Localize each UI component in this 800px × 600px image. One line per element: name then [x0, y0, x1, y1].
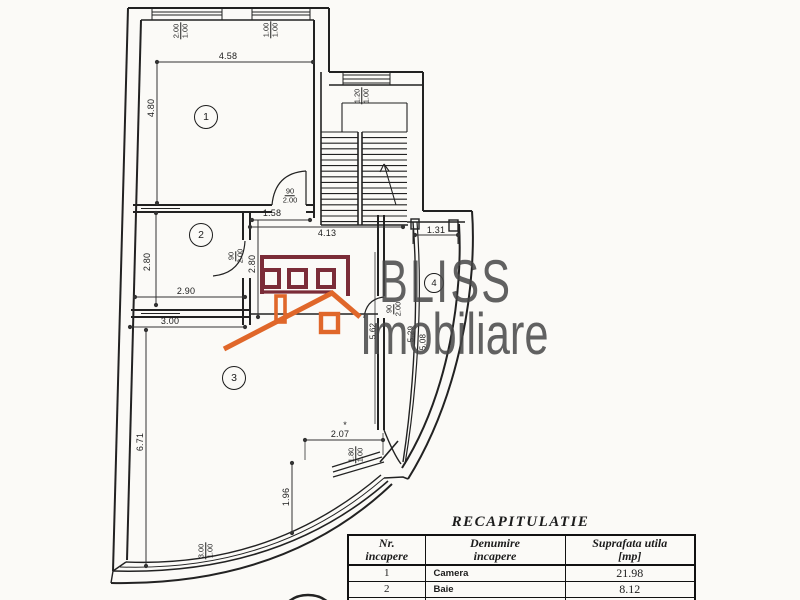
row-area: 8.12: [565, 581, 695, 597]
logo-house: [224, 257, 360, 349]
table-row: 1 Camera 21.98: [348, 565, 695, 582]
window-size-label-notch: 1.801.00: [347, 447, 365, 464]
room-3-badge: 3: [222, 366, 246, 390]
stairs: [321, 103, 408, 225]
row-area: 21.98: [565, 565, 695, 582]
dim-hall-height: 2.80: [247, 255, 257, 273]
dim-star-mark: *: [343, 420, 347, 430]
recap-table: Nr.incapere Denumireincapere Suprafata u…: [347, 534, 696, 600]
logo-window: [321, 314, 338, 332]
row-nr: 1: [348, 565, 425, 582]
col-header-denumire: Denumireincapere: [425, 535, 565, 565]
row-name: Baie: [425, 581, 565, 597]
room-2-badge: 2: [189, 223, 213, 247]
row-name: Camera: [425, 565, 565, 582]
dim-room1-width: 4.58: [219, 51, 237, 61]
window-size-label-stair: 1.201.00: [353, 88, 371, 105]
scanned-floor-plan-page: 1 2 3 4 4.58 4.80 2.80 2.90 3.00 6.71 1.…: [0, 0, 800, 600]
logo-building: [262, 257, 348, 296]
room-1-badge: 1: [194, 105, 218, 129]
dim-notch-width: 2.07: [331, 429, 349, 439]
recap-section: RECAPITULATIE Nr.incapere Denumireincape…: [347, 514, 694, 600]
door-size-label-room2: 902.00: [227, 249, 245, 264]
row-nr: 2: [348, 581, 425, 597]
door-size-label-room1: 902.00: [283, 187, 298, 205]
recap-title: RECAPITULATIE: [347, 514, 694, 531]
dim-notch-height: 1.96: [281, 488, 291, 506]
table-row: 2 Baie 8.12: [348, 581, 695, 597]
dim-room3-height: 6.71: [135, 433, 145, 451]
dim-bay-width: 1.31: [427, 225, 445, 235]
logo-roof: [224, 293, 360, 349]
col-header-suprafata: Suprafata utila[mp]: [565, 535, 695, 565]
window-size-label-top-right: 1.001.00: [262, 22, 280, 39]
dim-hall-width: 1.58: [263, 208, 281, 218]
dim-room2-height: 2.80: [142, 253, 152, 271]
window-size-label-bay: 3.001.00: [197, 543, 215, 560]
watermark-brand-line2: Imobiliare: [360, 301, 549, 368]
dim-room2-width: 2.90: [177, 286, 195, 296]
dim-room1-height: 4.80: [146, 99, 156, 117]
col-header-nr: Nr.incapere: [348, 535, 425, 565]
dim-stair-span: 4.13: [318, 228, 336, 238]
stamp-edge: [282, 595, 334, 600]
window-size-label-top-left: 2.001.00: [172, 23, 190, 40]
dim-room2-width2: 3.00: [161, 316, 179, 326]
